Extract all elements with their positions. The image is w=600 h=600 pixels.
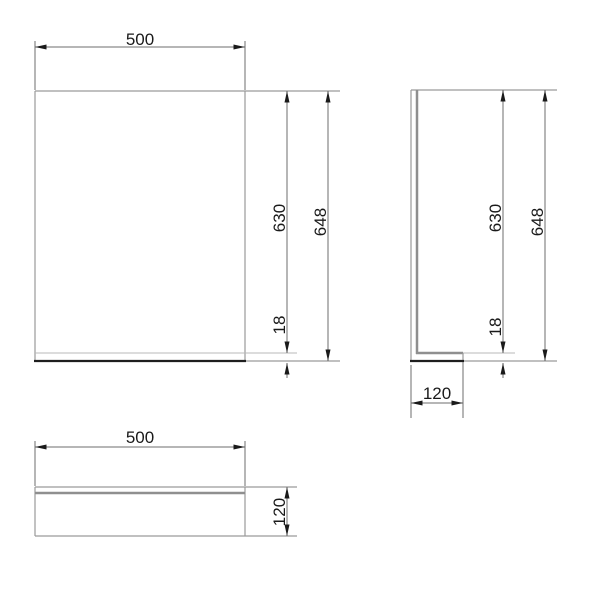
side-total-height-dim-label: 648: [528, 208, 547, 236]
front-inner-height-dim-label: 630: [270, 204, 289, 232]
front-view: 500 630 648 18: [34, 30, 340, 378]
bottom-depth-dim-label: 120: [270, 498, 289, 526]
bottom-view: 500 120: [35, 428, 297, 536]
side-inner-height-dim-label: 630: [486, 204, 505, 232]
front-thickness-dim-label: 18: [270, 316, 289, 335]
bottom-width-dim-label: 500: [126, 428, 154, 447]
front-width-dim-label: 500: [126, 30, 154, 49]
technical-drawing-canvas: 500 630 648 18 630 648 18 120: [0, 0, 600, 600]
side-depth-dim-label: 120: [423, 384, 451, 403]
side-thickness-dim-label: 18: [486, 318, 505, 337]
front-total-height-dim-label: 648: [311, 208, 330, 236]
side-view: 630 648 18 120: [410, 90, 557, 418]
